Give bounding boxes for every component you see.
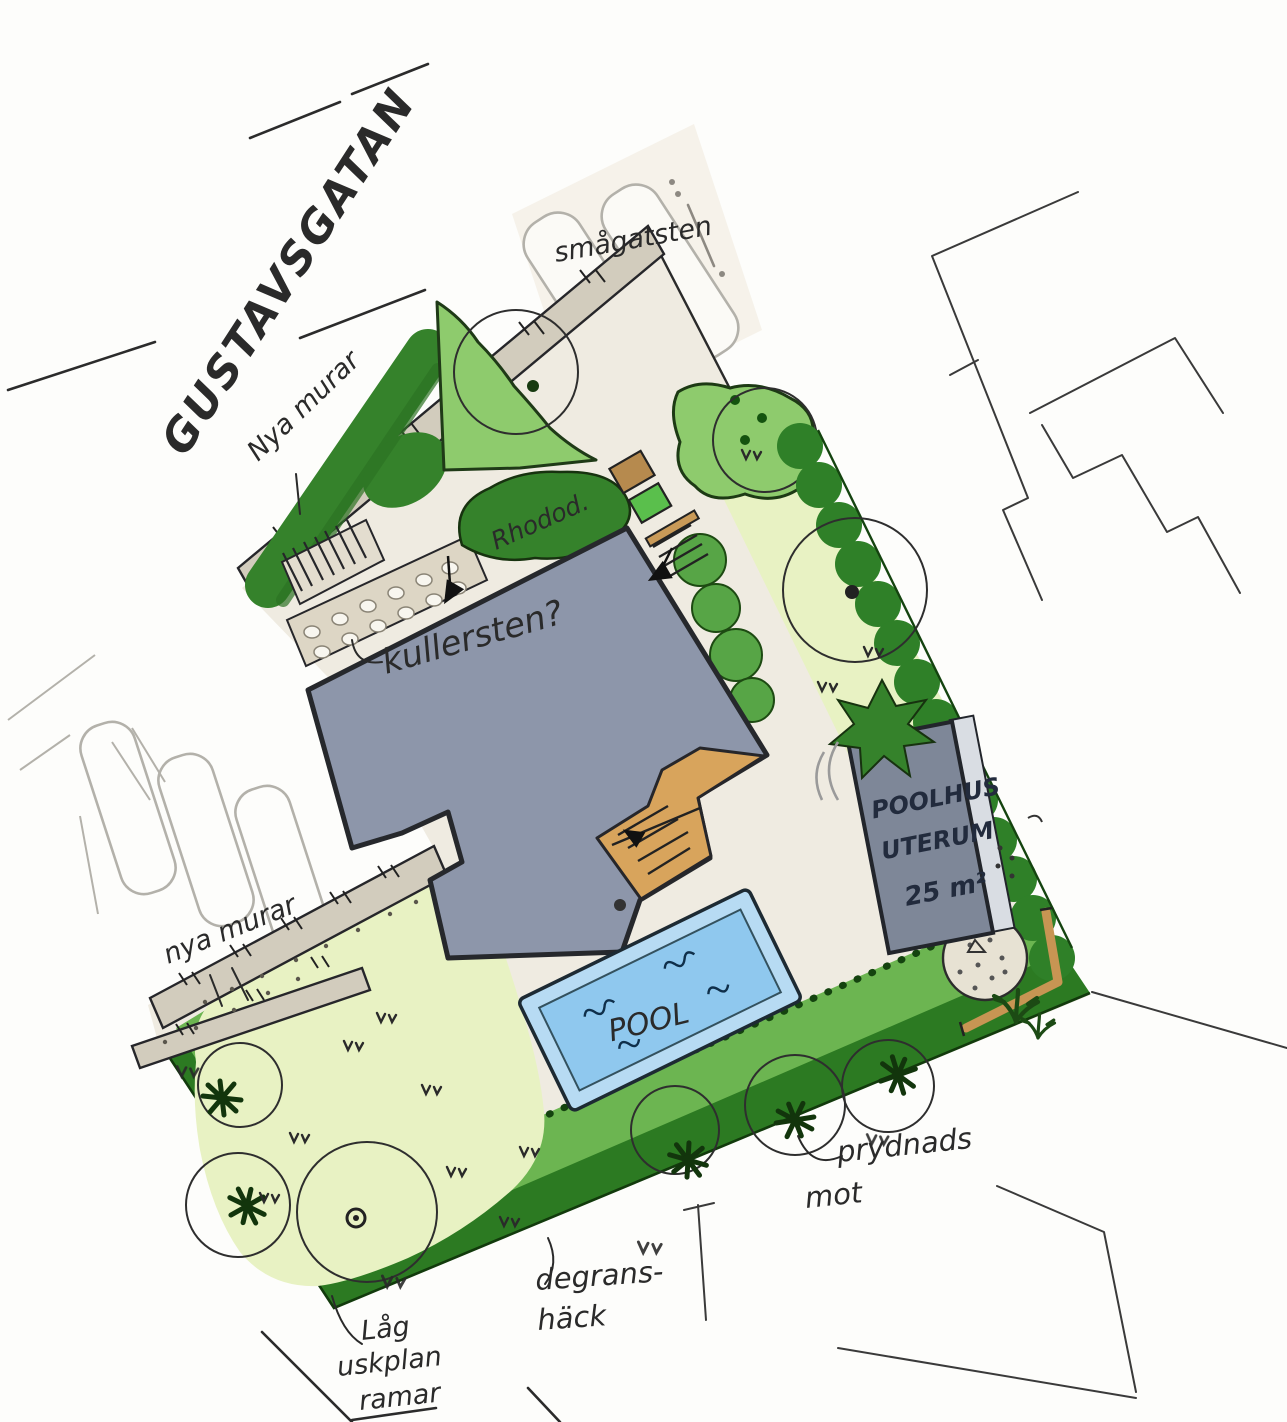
ornamental-label-2: mot [803, 1175, 865, 1215]
tree-trunk-dot [527, 380, 539, 392]
corner-knob [614, 899, 626, 911]
low-planting-label-1: Låg [359, 1311, 411, 1347]
tree-trunk-dot [845, 585, 859, 599]
plan-canvas: Rhodod. [0, 0, 1287, 1422]
garden-plan-sketch: Rhodod. [0, 0, 1287, 1422]
hedge-label-2: häck [536, 1298, 608, 1337]
